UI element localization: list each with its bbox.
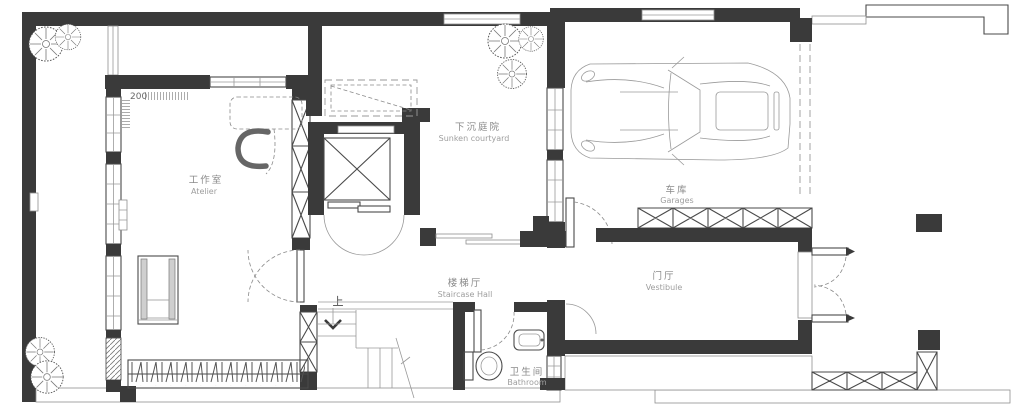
garage-door-dashed [800, 44, 810, 196]
chair [238, 131, 268, 166]
stairs-up-arrow [325, 308, 341, 328]
atelier-room: 200 工作室 [105, 26, 317, 392]
atelier-label-zh: 工作室 [189, 174, 224, 186]
plant-icon [31, 361, 63, 393]
skylight-void [325, 80, 417, 116]
atelier-door [248, 250, 304, 302]
elevator-sliding-door [328, 202, 360, 208]
car-symbol [571, 57, 790, 165]
radiator [119, 200, 127, 230]
hall-door-swing [566, 304, 596, 334]
elevator-shaft [306, 26, 430, 255]
vestibule-label-zh: 门厅 [652, 270, 675, 282]
atelier-label-en: Atelier [191, 187, 218, 196]
bathroom: 卫生间 Bathroom [453, 300, 565, 390]
plant-icon [519, 27, 543, 51]
dimension-200: 200 [122, 92, 189, 130]
site-outline-top-right [866, 5, 1008, 34]
x-brace-strip [638, 208, 812, 228]
hatch-column [106, 338, 121, 380]
site-outline-bottom-right [655, 390, 1010, 403]
garage-label-en: Garages [660, 196, 693, 205]
elevator-sliding-door [358, 206, 390, 212]
lounge-chair [138, 256, 178, 324]
column [918, 330, 940, 350]
garage: 车库 Garages [571, 44, 812, 228]
bathroom-door [474, 310, 514, 352]
elevator-cab [324, 138, 390, 200]
x-brace-strip [812, 352, 937, 390]
vestibule-label-en: Vestibule [646, 283, 683, 292]
sliding-door-panel [436, 234, 492, 238]
bathroom-label-en: Bathroom [507, 378, 547, 387]
floor-plan-svg: 200 工作室 [0, 0, 1024, 410]
courtyard-label-zh: 下沉庭院 [455, 121, 501, 133]
toilet-icon [464, 352, 502, 380]
stair-up-text: 上 [333, 295, 344, 308]
exterior-columns [812, 214, 942, 390]
column [916, 214, 942, 232]
staircase-label-en: Staircase Hall [438, 290, 493, 299]
floor-plan-page: 200 工作室 [0, 0, 1024, 410]
plant-icon [55, 24, 81, 50]
plant-icon [498, 60, 527, 89]
exterior-band [565, 356, 812, 390]
plant-icon [488, 24, 522, 58]
staircase-label-zh: 楼梯厅 [448, 277, 483, 289]
sliding-door-panel [466, 240, 522, 244]
garage-label-zh: 车库 [665, 184, 688, 196]
wall-notch [30, 193, 38, 211]
bookshelf-x-column [292, 100, 310, 238]
sink-icon [514, 330, 544, 350]
svg-text:200: 200 [130, 92, 147, 102]
bathroom-label-zh: 卫生间 [510, 366, 545, 378]
french-doors [798, 240, 855, 354]
lobby-double-door-swing [324, 215, 404, 255]
stairs [318, 302, 453, 398]
courtyard-label-en: Sunken courtyard [439, 134, 510, 143]
wardrobe-rail [128, 360, 308, 388]
